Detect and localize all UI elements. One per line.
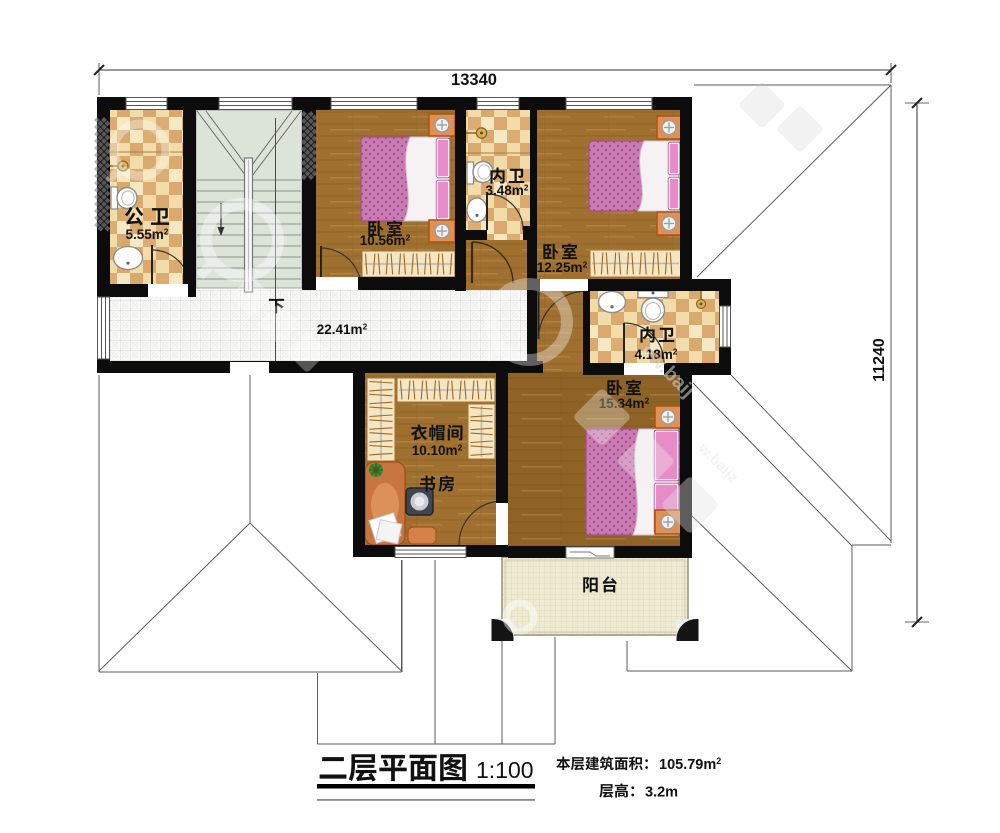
svg-text:22.41m2: 22.41m2: [317, 321, 368, 337]
svg-text:10.56m2: 10.56m2: [360, 232, 411, 248]
svg-text:3.48m2: 3.48m2: [486, 182, 529, 198]
svg-text:105.79m2: 105.79m2: [659, 756, 721, 773]
svg-text:12.25m2: 12.25m2: [537, 259, 588, 275]
svg-text:10.10m2: 10.10m2: [412, 442, 463, 458]
svg-text:w.baijz: w.baijz: [694, 439, 741, 486]
svg-text:1:100: 1:100: [476, 757, 534, 783]
svg-text:13340: 13340: [451, 71, 497, 89]
svg-text:3.2m: 3.2m: [645, 785, 678, 801]
svg-text:5.55m2: 5.55m2: [126, 226, 169, 242]
svg-text:11240: 11240: [871, 338, 888, 382]
